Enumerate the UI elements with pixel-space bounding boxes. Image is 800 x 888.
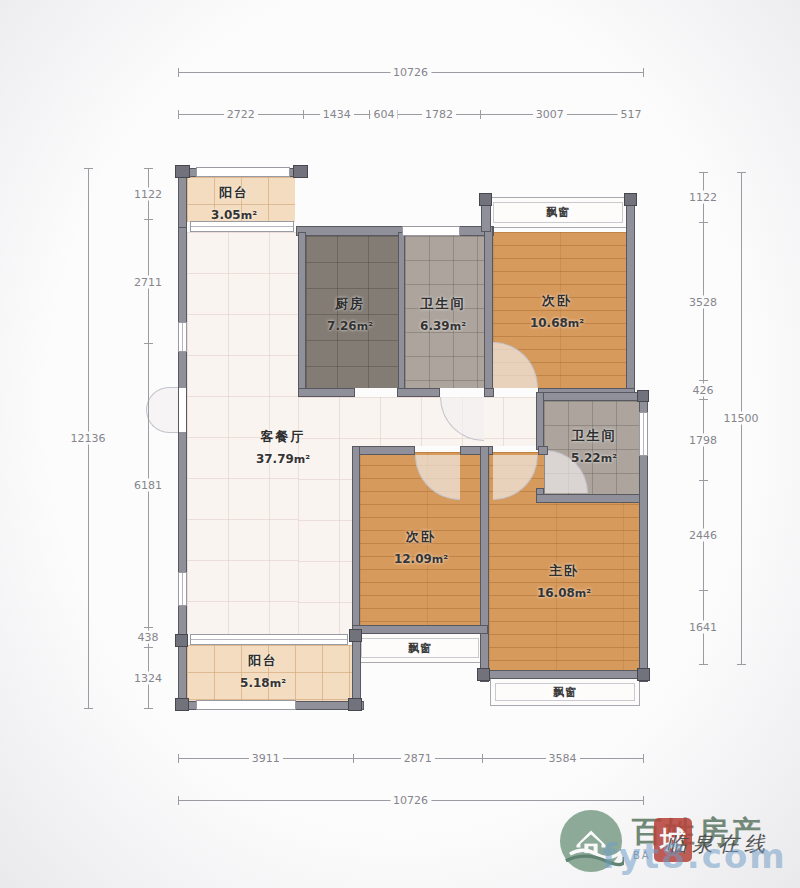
dim-label: 1122 bbox=[131, 187, 165, 200]
dim-run-left_segments: 1122271161814381324 bbox=[148, 168, 149, 708]
dim-label: 3007 bbox=[533, 108, 567, 121]
dim-tick bbox=[178, 68, 179, 77]
dim-label: 10726 bbox=[390, 794, 431, 807]
dim-tick bbox=[699, 222, 708, 223]
window-balcony-top-inner bbox=[190, 221, 294, 232]
dim-tick bbox=[144, 708, 153, 709]
dim-tick bbox=[699, 480, 708, 481]
dim-label: 11500 bbox=[721, 412, 762, 425]
room-label-balcony-top: 阳台 3.05m² bbox=[211, 184, 257, 222]
hallway-floor bbox=[298, 397, 536, 446]
url-watermark-text: fyt8.com bbox=[602, 836, 787, 876]
wall-under-kitchen-b bbox=[397, 388, 440, 397]
floor-plan-canvas: 飘窗 飘窗 飘窗 bbox=[0, 0, 800, 888]
dim-tick bbox=[737, 172, 746, 173]
pillar-balcony-top-right bbox=[293, 165, 308, 178]
dim-run-left_total_values: 12136 bbox=[88, 168, 89, 708]
pillar-balcb-tr bbox=[349, 629, 362, 642]
dim-run-bottom_total_values: 10726 bbox=[178, 800, 643, 801]
dim-tick bbox=[353, 754, 354, 763]
dim-tick bbox=[144, 647, 153, 648]
wall-bedroom-divider bbox=[480, 446, 489, 682]
dim-label: 3911 bbox=[249, 752, 283, 765]
room-label-bath-mid: 卫生间 5.22m² bbox=[571, 427, 617, 465]
wall-bath-mid-left-a bbox=[536, 392, 544, 450]
wall-bath-mid-top bbox=[536, 392, 648, 401]
dim-label: 438 bbox=[135, 631, 162, 644]
wall-bedroom-top-bottom-a bbox=[484, 388, 494, 397]
dim-tick bbox=[178, 754, 179, 763]
dim-tick bbox=[699, 399, 708, 400]
window-balcony-top bbox=[196, 167, 290, 177]
wall-under-kitchen-a bbox=[298, 388, 355, 397]
dim-label: 1782 bbox=[422, 108, 456, 121]
dim-tick bbox=[699, 664, 708, 665]
dim-label: 2711 bbox=[131, 275, 165, 288]
bay-window-master: 飘窗 bbox=[490, 678, 640, 706]
wall-bedroom-top-right bbox=[626, 196, 635, 396]
dim-label: 2722 bbox=[224, 108, 258, 121]
dim-label: 2871 bbox=[401, 752, 435, 765]
pillar-balcony-top-left bbox=[175, 165, 190, 178]
wall-kitchen-left bbox=[298, 232, 306, 394]
window-living-balcony bbox=[190, 634, 348, 645]
wall-master-bottom bbox=[480, 670, 648, 679]
dim-label: 6181 bbox=[131, 479, 165, 492]
window-left-2 bbox=[178, 572, 187, 606]
dim-tick bbox=[84, 708, 93, 709]
pillar-master-br bbox=[637, 668, 650, 681]
brand-watermark: 百姓房产 城 临泉在线 BA fyt8.com bbox=[558, 802, 788, 882]
dim-tick bbox=[144, 343, 153, 344]
dim-run-top_segments: 2722143460417823007517 bbox=[178, 114, 643, 115]
window-kitchen-top bbox=[402, 226, 460, 236]
room-label-living: 客餐厅 37.79m² bbox=[256, 428, 310, 466]
wall-hall-bottom-c bbox=[538, 446, 548, 455]
dim-label: 1324 bbox=[131, 671, 165, 684]
dim-tick bbox=[643, 754, 644, 763]
dim-label: 426 bbox=[690, 384, 717, 397]
pillar-baytop-left bbox=[479, 193, 492, 206]
dim-tick bbox=[699, 590, 708, 591]
dim-tick bbox=[178, 796, 179, 805]
pillar-right-step bbox=[637, 390, 649, 402]
window-left-1 bbox=[178, 322, 187, 352]
dim-tick bbox=[178, 110, 179, 119]
wall-bath-mid-bottom bbox=[536, 494, 648, 503]
room-label-bedroom-top: 次卧 10.68m² bbox=[530, 292, 584, 330]
dim-label: 1641 bbox=[686, 621, 720, 634]
wall-top-mid bbox=[296, 226, 494, 236]
dim-tick bbox=[699, 380, 708, 381]
dim-tick bbox=[480, 110, 481, 119]
dim-tick bbox=[699, 172, 708, 173]
room-label-kitchen: 厨房 7.26m² bbox=[327, 295, 373, 333]
dim-label: 1122 bbox=[686, 191, 720, 204]
bay-window-mid-label: 飘窗 bbox=[405, 641, 435, 656]
dim-label: 517 bbox=[618, 108, 645, 121]
dim-run-top_total_values: 10726 bbox=[178, 72, 643, 73]
pillar-baytop-right bbox=[624, 193, 637, 206]
pillar-balcb-br bbox=[348, 698, 362, 711]
dim-label: 3584 bbox=[546, 752, 580, 765]
bay-window-master-label: 飘窗 bbox=[550, 685, 580, 700]
dim-tick bbox=[643, 68, 644, 77]
dim-label: 10726 bbox=[390, 66, 431, 79]
dim-label: 604 bbox=[370, 108, 397, 121]
dim-tick bbox=[144, 627, 153, 628]
room-label-balcony-bottom: 阳台 5.18m² bbox=[240, 652, 286, 690]
room-label-master: 主卧 16.08m² bbox=[537, 562, 591, 600]
wall-bedroom-mid-bottom bbox=[352, 625, 488, 634]
pillar-master-bl bbox=[477, 668, 490, 681]
dim-label: 2446 bbox=[686, 529, 720, 542]
dim-label: 1434 bbox=[320, 108, 354, 121]
dim-label: 3528 bbox=[686, 295, 720, 308]
dim-tick bbox=[303, 110, 304, 119]
dim-label: 1798 bbox=[686, 434, 720, 447]
wall-hall-bottom-a bbox=[352, 446, 415, 455]
window-balcony-bottom bbox=[196, 700, 296, 710]
window-bath-mid-right bbox=[639, 412, 648, 456]
entry-door-opening bbox=[179, 388, 186, 432]
wall-bath-bedroom-divider bbox=[484, 226, 493, 394]
wall-bedroom-mid-left bbox=[352, 446, 360, 644]
bay-window-top-label: 飘窗 bbox=[543, 205, 573, 220]
dim-run-bottom_segments: 391128713584 bbox=[178, 758, 643, 759]
pillar-balcb-tl bbox=[175, 634, 188, 647]
dim-run-right_total_values: 11500 bbox=[741, 172, 742, 664]
dim-tick bbox=[144, 168, 153, 169]
bay-window-top: 飘窗 bbox=[488, 197, 628, 228]
dim-run-right_segments: 11223528426179824461641 bbox=[703, 172, 704, 664]
dim-tick bbox=[397, 110, 398, 119]
dim-tick bbox=[482, 754, 483, 763]
dim-label: 12136 bbox=[68, 432, 109, 445]
room-label-bedroom-mid: 次卧 12.09m² bbox=[394, 528, 448, 566]
bay-window-mid: 飘窗 bbox=[356, 633, 484, 663]
dim-tick bbox=[144, 219, 153, 220]
wall-kitchen-bath-divider bbox=[398, 232, 405, 394]
dim-tick bbox=[84, 168, 93, 169]
room-label-bath-top: 卫生间 6.39m² bbox=[420, 295, 466, 333]
pillar-balcb-bl bbox=[175, 698, 189, 711]
dim-tick bbox=[737, 664, 746, 665]
wall-right-lower-b bbox=[639, 454, 648, 682]
